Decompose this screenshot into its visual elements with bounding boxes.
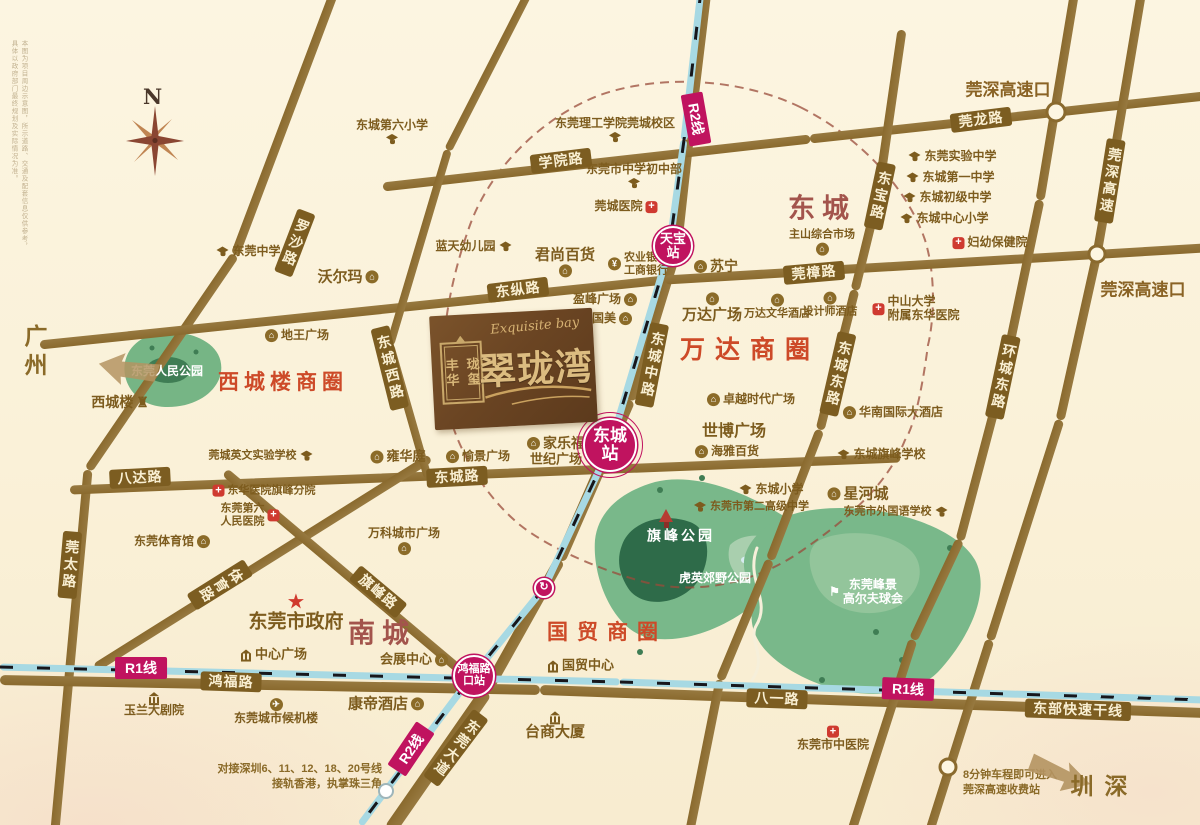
poi-text: 华南国际大酒店 <box>859 406 943 420</box>
shop-icon <box>827 488 840 501</box>
hospital-icon <box>827 726 839 738</box>
poi-label: 设计师酒店 <box>803 292 858 319</box>
shop-icon <box>197 535 210 548</box>
road-junction <box>1088 245 1107 264</box>
poi-label: 东城初级中学 <box>902 191 991 205</box>
poi-text: 东莞体育馆 <box>134 535 194 549</box>
poi-text: 蓝天幼儿园 <box>435 240 495 254</box>
poi-text: 东城第六小学 <box>356 119 428 133</box>
shop-icon <box>265 329 278 342</box>
road-label: 八一路 <box>746 688 808 710</box>
park-name-label: 旗峰公园 <box>647 528 715 545</box>
school-icon <box>215 246 229 257</box>
poi-text: 东莞市中医院 <box>797 739 869 753</box>
hospital-icon <box>646 201 658 213</box>
poi-label: 东莞市中学初中部 <box>586 163 682 189</box>
road-label: 鸿福路 <box>200 671 262 693</box>
shop-icon <box>624 293 637 306</box>
school-icon <box>836 449 850 460</box>
poi-label: 玉兰大剧院 <box>124 692 184 718</box>
poi-label: 东城第六小学 <box>356 119 428 145</box>
bank-icon <box>608 258 621 271</box>
poi-text: 星河城 <box>843 485 888 502</box>
poi-label: 世纪广场 <box>530 453 582 468</box>
poi-text: 东莞实验中学 <box>924 150 996 164</box>
school-icon <box>905 172 919 183</box>
poi-text: 西城楼 <box>91 394 133 410</box>
school-icon <box>935 506 949 517</box>
shop-icon <box>411 698 424 711</box>
shop-icon <box>397 542 410 555</box>
business-circle-label: 西城楼商圈 <box>218 366 348 396</box>
poi-text: 世纪广场 <box>530 453 582 468</box>
park-text: 东莞峰景高尔夫球会 <box>843 578 903 607</box>
school-icon <box>902 192 916 203</box>
poi-text: 中心广场 <box>255 648 307 663</box>
school-icon <box>693 501 707 512</box>
shop-icon <box>366 271 379 284</box>
metro-line-label: R1线 <box>115 657 167 679</box>
poi-text: 主山综合市场 <box>789 229 855 242</box>
poi-text: 东华医院旗峰分院 <box>228 485 316 498</box>
poi-text: 海雅百货 <box>711 445 759 459</box>
poi-text: 康帝酒店 <box>348 695 408 712</box>
shop-icon <box>771 294 784 307</box>
poi-text: 东莞市中学初中部 <box>586 163 682 177</box>
poi-text: 台商大厦 <box>525 723 585 740</box>
poi-label: 雍华庭 <box>370 450 425 465</box>
poi-label: 东莞市中医院 <box>797 726 869 753</box>
poi-label: 万达广场 <box>682 292 742 323</box>
poi-label: 愉景广场 <box>446 450 510 464</box>
tower-icon <box>136 395 149 409</box>
poi-label: 莞城英文实验学校 <box>209 450 314 463</box>
star-icon <box>288 593 304 611</box>
poi-text: 国贸中心 <box>562 659 614 674</box>
poi-text: 东莞市政府 <box>248 612 343 634</box>
poi-label: 会展中心 <box>380 653 448 668</box>
shop-icon <box>824 292 837 305</box>
poi-label: 康帝酒店 <box>348 695 424 712</box>
poi-text: 会展中心 <box>380 653 432 668</box>
shop-icon <box>705 292 718 305</box>
poi-label: 东莞第六人民医院 <box>221 502 280 527</box>
poi-text: 东莞市外国语学校 <box>844 506 932 519</box>
poi-label: 东城小学 <box>738 483 803 497</box>
road-label: 八达路 <box>109 467 171 490</box>
metro-station: 天宝站 <box>653 226 693 266</box>
poi-label: 万科城市广场 <box>368 527 440 555</box>
civic-icon <box>239 650 252 661</box>
school-icon <box>499 241 513 252</box>
poi-label: 国美 <box>592 312 632 326</box>
hospital-icon <box>213 485 225 497</box>
district-label: 东城 <box>788 187 856 226</box>
poi-text: 沃尔玛 <box>317 268 362 285</box>
poi-text: 莞城医院 <box>594 200 642 214</box>
business-circle-label: 国贸商圈 <box>547 616 667 646</box>
poi-label: 东莞城市候机楼 <box>234 698 318 726</box>
poi-text: 妇幼保健院 <box>967 236 1027 250</box>
poi-label: 台商大厦 <box>525 711 585 740</box>
poi-label: 东莞中学 <box>215 245 280 259</box>
poi-text: 国美 <box>592 312 616 326</box>
highway-exit-label: 莞深高速口 <box>1101 276 1186 301</box>
highway-exit-label: 莞深高速口 <box>966 76 1051 101</box>
poi-label: 君尚百货 <box>535 246 595 277</box>
business-circle-label: 万达商圈 <box>680 330 820 366</box>
park-name-label: 虎英郊野公园 <box>679 571 751 585</box>
poi-label: 主山综合市场 <box>789 229 855 256</box>
hospital-icon <box>872 303 884 315</box>
hospital-icon <box>268 509 280 521</box>
poi-label: 东莞理工学院莞城校区 <box>555 117 675 143</box>
poi-text: 东城旗峰学校 <box>853 448 925 462</box>
poi-text: 雍华庭 <box>386 450 425 465</box>
poi-label: 东莞市政府 <box>248 593 343 634</box>
poi-text: 世博广场 <box>702 423 766 441</box>
shop-icon <box>435 654 448 667</box>
school-icon <box>385 134 399 145</box>
poi-label: 东莞体育馆 <box>134 535 210 549</box>
civic-icon <box>147 692 160 703</box>
civic-icon <box>546 661 559 672</box>
poi-text: 万科城市广场 <box>368 527 440 541</box>
metro-line-label: R1线 <box>882 677 935 701</box>
poi-text: 东城初级中学 <box>919 191 991 205</box>
city-direction-label: 广州 <box>17 324 51 382</box>
poi-text: 地王广场 <box>281 329 329 343</box>
road-junction <box>939 758 958 777</box>
poi-text: 东莞理工学院莞城校区 <box>555 117 675 131</box>
metro-station: 鸿福路口站 <box>453 655 495 697</box>
poi-label: 地王广场 <box>265 329 329 343</box>
poi-label: 华南国际大酒店 <box>843 406 943 420</box>
poi-label: 中山大学附属东华医院 <box>872 295 959 323</box>
shop-icon <box>446 450 459 463</box>
poi-label: 海雅百货 <box>695 445 759 459</box>
logo-flourish <box>429 308 598 430</box>
poi-label: 世博广场 <box>702 423 766 441</box>
poi-label: 盈峰广场 <box>573 293 637 307</box>
school-icon <box>899 213 913 224</box>
poi-text: 万达广场 <box>682 306 742 323</box>
disclaimer-text: 本图为项目周边示意图，所示道路、交通及配套信息仅供参考，具体以政府部门最终规划及… <box>8 40 28 255</box>
poi-text: 设计师酒店 <box>803 306 858 319</box>
road-label: 东城路 <box>426 466 488 489</box>
school-icon <box>627 178 641 189</box>
park-name-label: 东莞峰景高尔夫球会 <box>829 578 903 607</box>
location-map: N 本图为项目周边示意图，所示道路、交通及配套信息仅供参考，具体以政府部门最终规… <box>0 0 1200 825</box>
poi-text: 中山大学附属东华医院 <box>887 295 959 323</box>
shop-icon <box>527 437 540 450</box>
hospital-icon <box>952 237 964 249</box>
poi-label: 东华医院旗峰分院 <box>213 485 316 498</box>
poi-text: 东城第一中学 <box>922 171 994 185</box>
poi-label: 莞城医院 <box>594 200 657 214</box>
school-icon <box>300 450 314 461</box>
shop-icon <box>843 406 856 419</box>
pagoda-icon <box>659 509 673 522</box>
poi-text: 东城中心小学 <box>916 212 988 226</box>
school-icon <box>907 151 921 162</box>
shop-icon <box>695 445 708 458</box>
shop-icon <box>707 393 720 406</box>
poi-text: 苏宁 <box>710 258 738 274</box>
poi-label: 东城旗峰学校 <box>836 448 925 462</box>
poi-label: 沃尔玛 <box>317 268 378 285</box>
civic-icon <box>548 711 561 722</box>
poi-label: 国贸中心 <box>546 659 614 674</box>
poi-label: 东莞市外国语学校 <box>844 506 949 519</box>
school-icon <box>608 132 622 143</box>
poi-label: 妇幼保健院 <box>952 236 1027 250</box>
poi-text: 万达文华酒店 <box>744 308 810 321</box>
poi-text: 东莞城市候机楼 <box>234 712 318 726</box>
flag-icon <box>829 586 840 598</box>
poi-label: 中心广场 <box>239 648 307 663</box>
shop-icon <box>694 260 707 273</box>
compass-rose-icon <box>124 104 186 178</box>
shop-icon <box>558 265 571 278</box>
metro-station: 东城站 <box>583 418 637 472</box>
shop-icon <box>619 312 632 325</box>
road-junction <box>1046 102 1067 123</box>
poi-text: 愉景广场 <box>462 450 510 464</box>
district-label: 南城 <box>348 612 416 651</box>
city-direction-label: 深圳 <box>1063 774 1131 808</box>
plane-icon <box>269 698 282 711</box>
shop-icon <box>816 242 829 255</box>
park-text: 虎英郊野公园 <box>679 571 751 585</box>
poi-text: 东城小学 <box>755 483 803 497</box>
poi-label: 东城中心小学 <box>899 212 988 226</box>
park-text: 旗峰公园 <box>647 528 715 545</box>
poi-label: 西城楼 <box>91 394 149 410</box>
note-text: 对接深圳6、11、12、18、20号线接轨香港，执掌珠三角 <box>218 762 382 792</box>
poi-label: 蓝天幼儿园 <box>435 240 512 254</box>
poi-text: 东莞市第二高级中学 <box>710 501 809 514</box>
poi-label: 东莞市第二高级中学 <box>693 501 809 514</box>
poi-text: 东莞中学 <box>232 245 280 259</box>
poi-label: 东莞实验中学 <box>907 150 996 164</box>
project-logo: 丰华 珑玺 Exquisite bay 翠珑湾 <box>429 308 598 430</box>
poi-text: 东莞第六人民医院 <box>221 502 265 527</box>
poi-text: 盈峰广场 <box>573 293 621 307</box>
poi-label: 星河城 <box>827 485 888 502</box>
metro-station: ↻ <box>534 578 554 598</box>
poi-text: 卓越时代广场 <box>723 393 795 407</box>
poi-text: 莞城英文实验学校 <box>209 450 297 463</box>
poi-label: 卓越时代广场 <box>707 393 795 407</box>
shop-icon <box>370 451 383 464</box>
metro-station <box>378 783 394 799</box>
poi-label: 苏宁 <box>694 258 738 274</box>
poi-label: 东城第一中学 <box>905 171 994 185</box>
poi-text: 君尚百货 <box>535 246 595 263</box>
poi-label: 万达文华酒店 <box>744 294 810 321</box>
poi-text: 玉兰大剧院 <box>124 704 184 718</box>
school-icon <box>738 484 752 495</box>
